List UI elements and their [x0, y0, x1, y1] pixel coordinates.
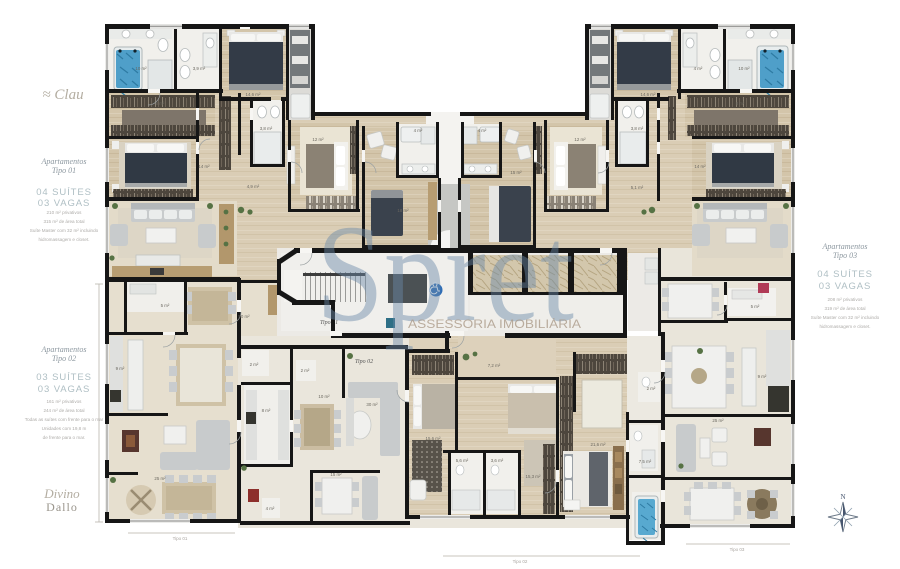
svg-text:14,6 m²: 14,6 m² [246, 92, 261, 97]
svg-text:4 m²: 4 m² [478, 128, 487, 133]
svg-text:03 VAGAS: 03 VAGAS [819, 281, 871, 292]
svg-text:15 m²: 15 m² [330, 472, 342, 477]
svg-text:4 m²: 4 m² [694, 66, 703, 71]
svg-text:03 VAGAS: 03 VAGAS [38, 384, 90, 395]
svg-text:Divino: Divino [43, 486, 80, 501]
svg-text:Suíte Master com 32 m² incluin: Suíte Master com 32 m² incluindo [811, 315, 880, 320]
svg-text:161 m² privativos: 161 m² privativos [47, 399, 83, 404]
svg-text:2 m²: 2 m² [301, 368, 310, 373]
svg-text:Todas as suítes com frente par: Todas as suítes com frente para o mar [25, 417, 104, 422]
svg-text:Apartamentos: Apartamentos [822, 242, 868, 251]
svg-text:3,8 m²: 3,8 m² [631, 126, 644, 131]
svg-text:319 m² de área total: 319 m² de área total [824, 306, 865, 311]
svg-text:Suíte Master com 32 m² incluin: Suíte Master com 32 m² incluindo [30, 228, 99, 233]
svg-text:hidromassagem e closet.: hidromassagem e closet. [38, 237, 89, 242]
svg-text:14 m²: 14 m² [694, 164, 706, 169]
svg-text:2 m²: 2 m² [647, 386, 656, 391]
svg-text:2 m²: 2 m² [250, 362, 259, 367]
svg-text:4 m²: 4 m² [266, 506, 275, 511]
svg-text:5,6 m²: 5,6 m² [456, 458, 469, 463]
svg-text:Tipo 03: Tipo 03 [833, 251, 857, 260]
svg-text:208 m² privativos: 208 m² privativos [828, 297, 864, 302]
svg-text:5 m²: 5 m² [751, 304, 760, 309]
svg-text:5,1 m²: 5,1 m² [631, 185, 644, 190]
svg-text:5 m²: 5 m² [161, 303, 170, 308]
svg-text:7,5 m²: 7,5 m² [639, 459, 652, 464]
svg-text:10 m²: 10 m² [738, 66, 750, 71]
svg-text:25 m²: 25 m² [712, 418, 724, 423]
svg-text:10 m²: 10 m² [318, 394, 330, 399]
svg-text:3,8 m²: 3,8 m² [260, 126, 273, 131]
svg-text:Tipo 01: Tipo 01 [173, 536, 188, 541]
svg-text:21,6 m²: 21,6 m² [591, 442, 606, 447]
svg-text:04 SUÍTES: 04 SUÍTES [817, 269, 873, 280]
svg-text:Dallo: Dallo [46, 500, 78, 514]
svg-text:Tipo 03: Tipo 03 [730, 547, 745, 552]
svg-text:03 VAGAS: 03 VAGAS [38, 198, 90, 209]
svg-text:7,2 m²: 7,2 m² [488, 363, 501, 368]
svg-text:14,6 m²: 14,6 m² [641, 92, 656, 97]
svg-text:14 m²: 14 m² [198, 164, 210, 169]
svg-text:hidromassagem e closet.: hidromassagem e closet. [819, 324, 870, 329]
svg-text:≈ Clau: ≈ Clau [42, 87, 83, 103]
svg-text:315 m² de área total: 315 m² de área total [43, 219, 84, 224]
svg-text:12 m²: 12 m² [574, 137, 586, 142]
svg-text:15,6 m²: 15,6 m² [426, 436, 441, 441]
svg-text:9 m²: 9 m² [758, 374, 767, 379]
svg-text:Tipo 02: Tipo 02 [513, 559, 528, 564]
svg-text:12 m²: 12 m² [312, 137, 324, 142]
svg-text:Apartamentos: Apartamentos [41, 157, 87, 166]
svg-text:210 m² privativos: 210 m² privativos [47, 210, 83, 215]
svg-text:3,6 m²: 3,6 m² [491, 458, 504, 463]
svg-text:10 m²: 10 m² [135, 66, 147, 71]
svg-text:25 m²: 25 m² [154, 476, 166, 481]
svg-text:15,3 m²: 15,3 m² [526, 474, 541, 479]
svg-text:Unidades com 19,8 m: Unidades com 19,8 m [42, 426, 87, 431]
svg-text:ASSESSORIA IMOBILIÁRIA: ASSESSORIA IMOBILIÁRIA [408, 318, 581, 331]
svg-text:N: N [840, 493, 845, 501]
svg-text:30 m²: 30 m² [366, 402, 378, 407]
svg-text:4,9 m²: 4,9 m² [247, 184, 260, 189]
svg-text:15 m²: 15 m² [510, 170, 522, 175]
svg-text:9 m²: 9 m² [116, 366, 125, 371]
svg-text:8 m²: 8 m² [736, 101, 745, 106]
svg-text:04 SUÍTES: 04 SUÍTES [36, 187, 92, 198]
svg-text:Tipo 01: Tipo 01 [52, 166, 76, 175]
svg-text:4 m²: 4 m² [414, 128, 423, 133]
svg-text:8 m²: 8 m² [156, 101, 165, 106]
svg-text:Tipo 02: Tipo 02 [52, 354, 76, 363]
svg-text:3,9 m²: 3,9 m² [193, 66, 206, 71]
svg-text:Tipo 02: Tipo 02 [355, 359, 373, 365]
svg-text:50 m²: 50 m² [238, 314, 250, 319]
svg-text:de frente para o mar.: de frente para o mar. [43, 435, 86, 440]
svg-text:03 SUÍTES: 03 SUÍTES [36, 372, 92, 383]
svg-text:Apartamentos: Apartamentos [41, 345, 87, 354]
svg-text:8 m²: 8 m² [262, 408, 271, 413]
svg-text:244 m² de área total: 244 m² de área total [43, 408, 84, 413]
